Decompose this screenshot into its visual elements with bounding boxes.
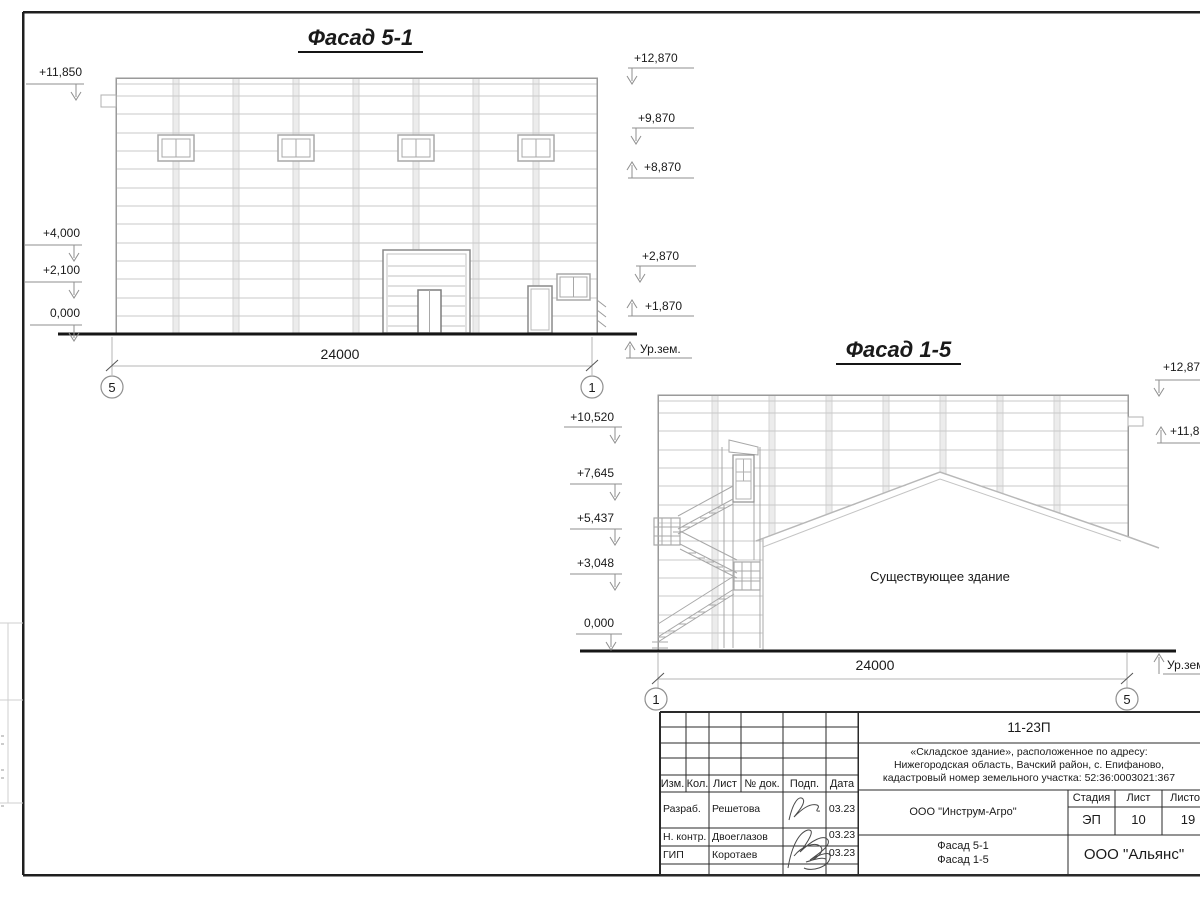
elevation-mark: 0,000	[8, 307, 80, 321]
axis-number: 1	[652, 692, 659, 707]
elevation-mark: +2,100	[8, 264, 80, 278]
date-gip: 03.23	[827, 847, 857, 859]
col-header-podp: Подп.	[783, 778, 826, 791]
elevation-mark: +4,000	[8, 227, 80, 241]
company-name: ООО "Альянс"	[1068, 846, 1200, 863]
date-razrab: 03.23	[827, 803, 857, 815]
doc-number: 11-23П	[858, 720, 1200, 736]
gate	[383, 250, 470, 333]
elevation-mark: +9,870	[638, 112, 675, 126]
elevation-mark: +12,870	[1163, 361, 1200, 375]
sheet-value: 10	[1115, 813, 1162, 828]
small-window	[557, 274, 590, 300]
drawing-title-line2: Фасад 1-5	[858, 854, 1068, 867]
existing-building-silhouette	[756, 472, 1160, 650]
elevation-mark: 0,000	[542, 617, 614, 631]
canopy-ledge	[101, 95, 116, 107]
client-name: ООО "Инструм-Агро"	[858, 806, 1068, 819]
col-header-list: Лист	[709, 778, 741, 791]
project-address-line2: Нижегородская область, Вачский район, с.…	[858, 759, 1200, 771]
elevation-mark: +2,870	[642, 250, 679, 264]
existing-building-label: Существующее здание	[845, 570, 1035, 585]
stage-value: ЭП	[1068, 813, 1115, 828]
corner-hatch	[597, 300, 606, 327]
signature-reshetova	[789, 798, 820, 820]
elevation-mark: +10,520	[542, 411, 614, 425]
elevation-mark: +1,870	[645, 300, 682, 314]
name-razrab: Решетова	[712, 803, 760, 815]
signature-dvoyeglazov	[788, 830, 830, 869]
col-header-doc: № док.	[741, 778, 783, 791]
canopy-ledge	[1128, 417, 1143, 426]
drawing-title-line1: Фасад 5-1	[858, 840, 1068, 853]
name-gip: Коротаев	[712, 849, 757, 861]
ground-level-label: Ур.зем.	[1167, 659, 1200, 673]
elevation-mark: +7,645	[542, 467, 614, 481]
role-nkontr: Н. контр.	[663, 831, 706, 843]
date-nkontr: 03.23	[827, 829, 857, 841]
facade-1-5-title: Фасад 1-5	[836, 337, 961, 365]
axis-number: 5	[108, 380, 115, 395]
elevation-mark: +12,870	[634, 52, 678, 66]
margin-stamp	[0, 623, 23, 806]
col-header-kol: Кол.	[686, 778, 709, 791]
role-gip: ГИП	[663, 849, 684, 861]
role-razrab: Разраб.	[663, 803, 701, 815]
ground-level-label: Ур.зем.	[640, 343, 681, 357]
elevation-markers	[24, 68, 696, 358]
facade-5-1-title: Фасад 5-1	[298, 25, 423, 53]
project-address-line1: «Складское здание», расположенное по адр…	[858, 746, 1200, 758]
axis-number: 1	[588, 380, 595, 395]
sheet-header: Лист	[1115, 792, 1162, 805]
stage-header: Стадия	[1068, 792, 1115, 805]
stair-canopy	[729, 440, 758, 455]
elevation-mark: +8,870	[644, 161, 681, 175]
col-header-izm: Изм.	[659, 778, 686, 791]
drawing-sheet: 5 1	[0, 0, 1200, 900]
elevation-mark: +3,048	[542, 557, 614, 571]
signatures	[788, 798, 830, 869]
name-nkontr: Двоеглазов	[712, 831, 768, 843]
elevation-mark: +11,850	[10, 66, 82, 80]
elevation-mark: +5,437	[542, 512, 614, 526]
project-address-line3: кадастровый номер земельного участка: 52…	[858, 772, 1200, 784]
fire-escape-stair	[652, 440, 760, 648]
dimension-value: 24000	[820, 657, 930, 673]
col-header-data: Дата	[826, 778, 858, 791]
dimension-value: 24000	[290, 346, 390, 362]
sheets-header: Листов	[1162, 792, 1200, 805]
entry-door	[528, 286, 552, 333]
axis-number: 5	[1123, 692, 1130, 707]
elevation-mark: +11,850	[1170, 425, 1200, 439]
sheets-value: 19	[1162, 813, 1200, 828]
